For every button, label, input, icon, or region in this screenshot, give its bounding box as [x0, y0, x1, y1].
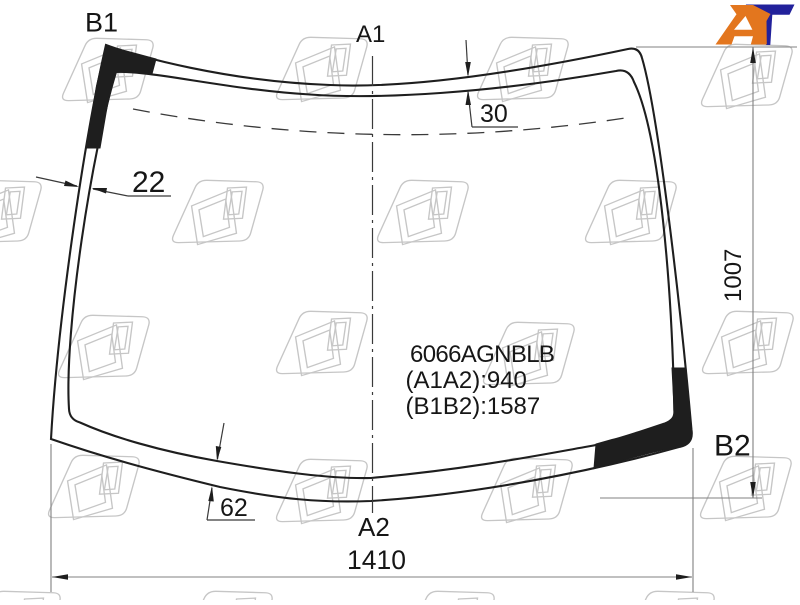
svg-text:A2: A2	[358, 512, 390, 542]
svg-text:62: 62	[220, 494, 248, 522]
svg-text:1007: 1007	[720, 249, 747, 302]
svg-text:B1: B1	[85, 8, 118, 38]
svg-text:(B1B2):1587: (B1B2):1587	[406, 393, 541, 420]
svg-text:A1: A1	[356, 21, 385, 48]
svg-text:B2: B2	[714, 430, 751, 463]
svg-text:30: 30	[480, 100, 508, 128]
svg-text:(A1A2):940: (A1A2):940	[406, 367, 527, 394]
svg-text:6066AGNBLB: 6066AGNBLB	[410, 341, 554, 368]
svg-text:1410: 1410	[347, 545, 406, 575]
svg-text:22: 22	[132, 166, 165, 199]
